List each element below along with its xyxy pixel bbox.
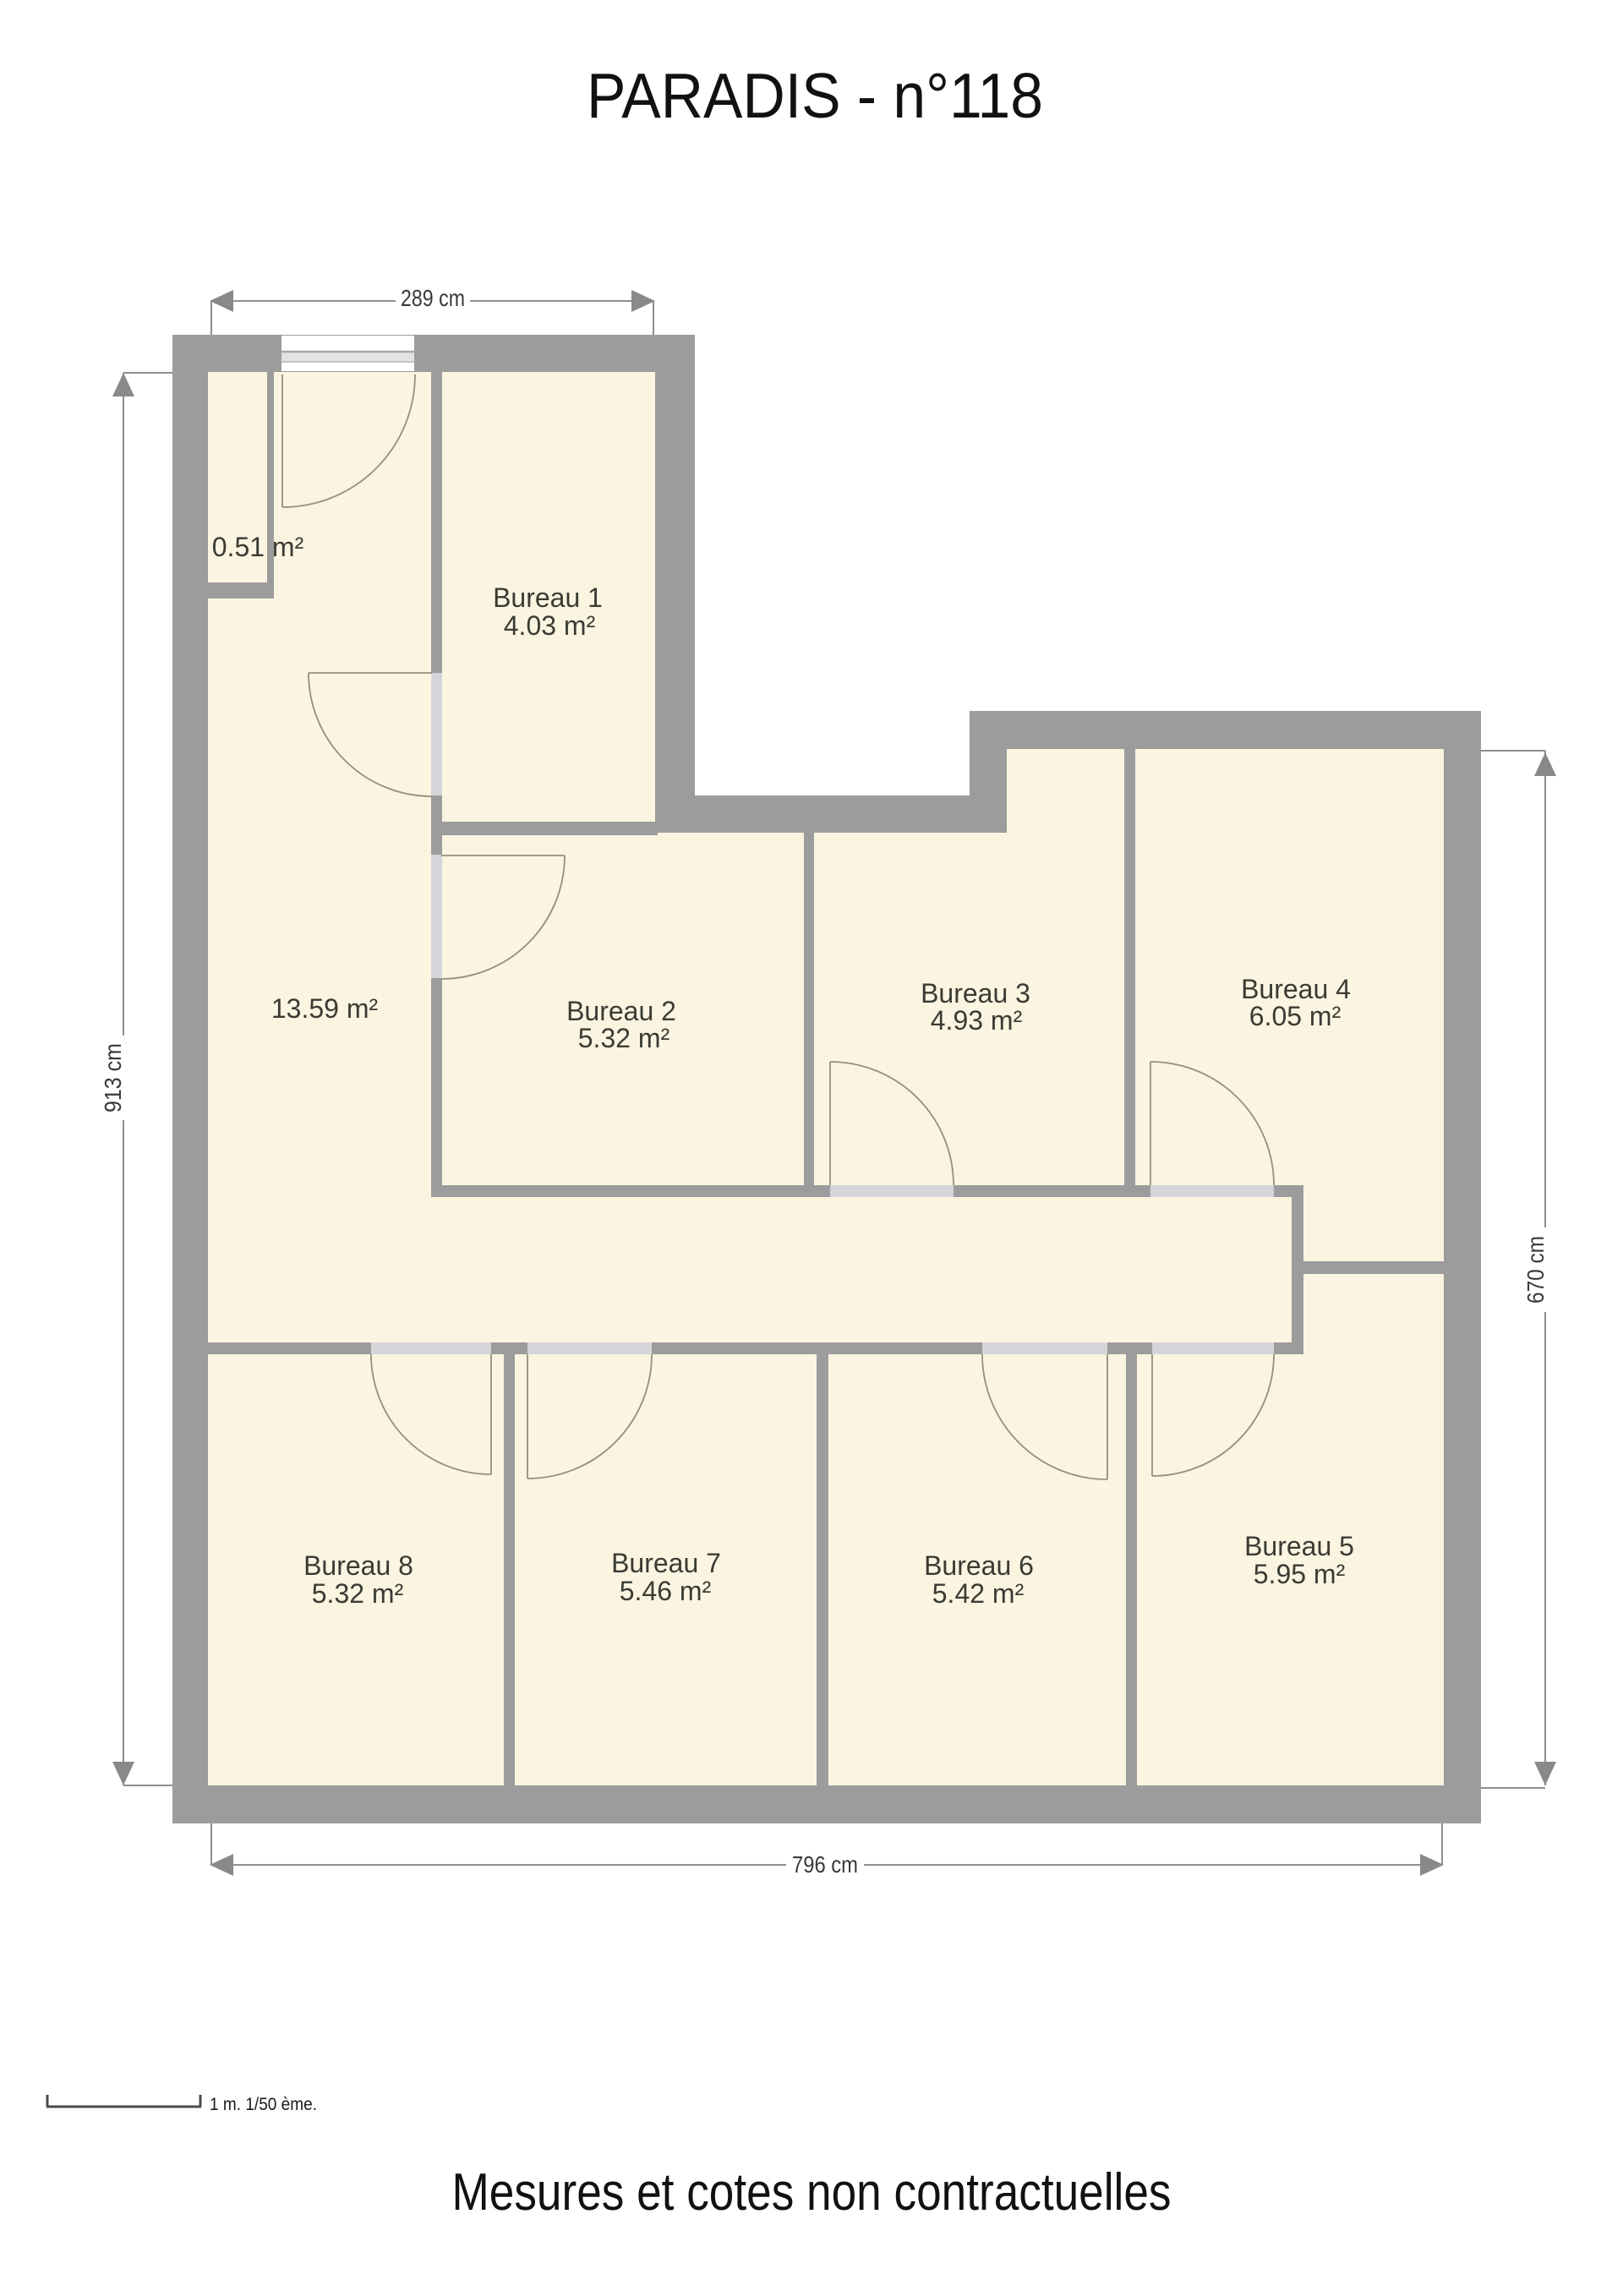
svg-text:5.32 m²: 5.32 m² bbox=[312, 1578, 404, 1609]
svg-text:Bureau 6: Bureau 6 bbox=[924, 1550, 1034, 1581]
svg-text:Bureau 8: Bureau 8 bbox=[303, 1550, 413, 1581]
svg-text:Bureau 3: Bureau 3 bbox=[921, 978, 1030, 1009]
svg-text:5.46 m²: 5.46 m² bbox=[620, 1576, 712, 1606]
svg-text:13.59 m²: 13.59 m² bbox=[271, 993, 379, 1024]
svg-text:5.42 m²: 5.42 m² bbox=[932, 1578, 1025, 1609]
svg-text:Bureau 5: Bureau 5 bbox=[1244, 1531, 1354, 1561]
svg-text:Mesures et cotes non contractu: Mesures et cotes non contractuelles bbox=[452, 2163, 1172, 2222]
svg-text:1 m. 1/50 ème.: 1 m. 1/50 ème. bbox=[210, 2095, 317, 2114]
svg-text:670 cm: 670 cm bbox=[1522, 1236, 1549, 1304]
svg-text:289 cm: 289 cm bbox=[401, 285, 465, 311]
svg-text:Bureau 7: Bureau 7 bbox=[611, 1548, 721, 1578]
svg-text:5.32 m²: 5.32 m² bbox=[578, 1023, 670, 1053]
svg-text:5.95 m²: 5.95 m² bbox=[1254, 1559, 1346, 1589]
svg-text:4.03 m²: 4.03 m² bbox=[504, 610, 596, 641]
svg-text:0.51 m²: 0.51 m² bbox=[212, 532, 304, 562]
svg-text:796 cm: 796 cm bbox=[792, 1851, 858, 1878]
svg-text:Bureau 4: Bureau 4 bbox=[1241, 974, 1351, 1004]
svg-text:4.93 m²: 4.93 m² bbox=[931, 1005, 1023, 1036]
svg-text:Bureau 1: Bureau 1 bbox=[493, 582, 603, 613]
svg-text:PARADIS - n°118: PARADIS - n°118 bbox=[587, 60, 1043, 131]
svg-text:Bureau 2: Bureau 2 bbox=[566, 996, 676, 1026]
svg-text:6.05 m²: 6.05 m² bbox=[1249, 1001, 1342, 1031]
svg-text:913 cm: 913 cm bbox=[100, 1043, 126, 1112]
